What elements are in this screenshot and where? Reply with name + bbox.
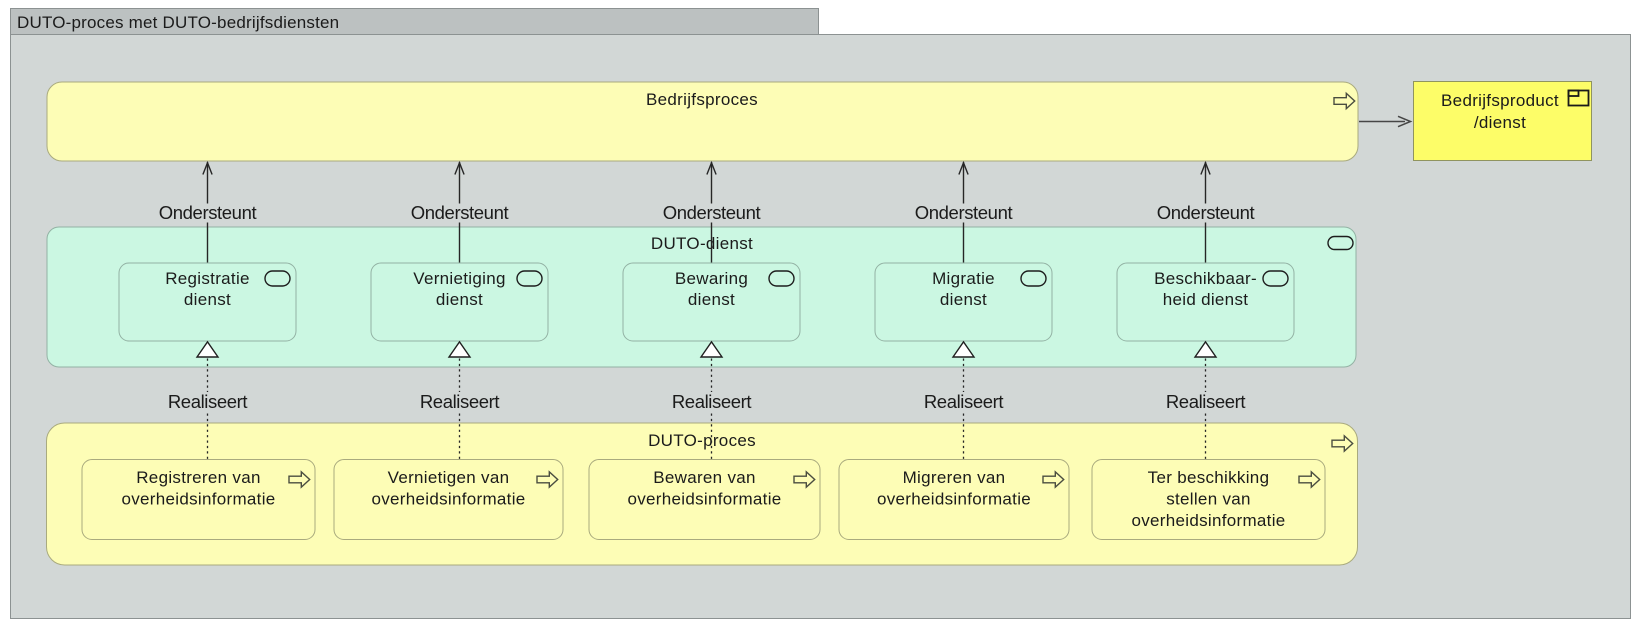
svg-text:Realiseert: Realiseert — [1166, 391, 1246, 412]
svg-text:Ondersteunt: Ondersteunt — [159, 202, 257, 223]
svg-text:Migreren van: Migreren van — [903, 468, 1006, 487]
svg-text:Registratie: Registratie — [165, 269, 250, 288]
svg-text:overheidsinformatie: overheidsinformatie — [121, 490, 275, 509]
svg-text:dienst: dienst — [688, 290, 735, 309]
svg-text:DUTO-proces: DUTO-proces — [648, 431, 756, 450]
svg-text:Ter beschikking: Ter beschikking — [1148, 468, 1270, 487]
svg-text:Bedrijfsproduct: Bedrijfsproduct — [1441, 91, 1559, 110]
svg-text:Migratie: Migratie — [932, 269, 995, 288]
svg-text:Ondersteunt: Ondersteunt — [663, 202, 761, 223]
svg-text:Bedrijfsproces: Bedrijfsproces — [646, 90, 758, 109]
svg-text:DUTO-dienst: DUTO-dienst — [651, 234, 753, 253]
svg-text:overheidsinformatie: overheidsinformatie — [1131, 511, 1285, 530]
svg-text:Realiseert: Realiseert — [924, 391, 1004, 412]
svg-text:Bewaren van: Bewaren van — [653, 468, 756, 487]
svg-text:DUTO-proces met DUTO-bedrijfsd: DUTO-proces met DUTO-bedrijfsdiensten — [17, 13, 339, 32]
svg-text:Ondersteunt: Ondersteunt — [1157, 202, 1255, 223]
svg-text:Beschikbaar-: Beschikbaar- — [1154, 269, 1257, 288]
svg-text:Bewaring: Bewaring — [675, 269, 748, 288]
svg-text:Realiseert: Realiseert — [420, 391, 500, 412]
svg-text:Realiseert: Realiseert — [168, 391, 248, 412]
svg-text:Registreren van: Registreren van — [136, 468, 261, 487]
svg-text:overheidsinformatie: overheidsinformatie — [627, 490, 781, 509]
svg-text:Realiseert: Realiseert — [672, 391, 752, 412]
svg-text:overheidsinformatie: overheidsinformatie — [371, 490, 525, 509]
svg-text:dienst: dienst — [940, 290, 987, 309]
svg-text:dienst: dienst — [184, 290, 231, 309]
svg-text:Ondersteunt: Ondersteunt — [411, 202, 509, 223]
svg-text:dienst: dienst — [436, 290, 483, 309]
svg-text:stellen van: stellen van — [1166, 490, 1251, 509]
svg-text:Ondersteunt: Ondersteunt — [915, 202, 1013, 223]
svg-text:/dienst: /dienst — [1474, 113, 1526, 132]
svg-text:overheidsinformatie: overheidsinformatie — [877, 490, 1031, 509]
svg-text:heid dienst: heid dienst — [1163, 290, 1249, 309]
svg-text:Vernietiging: Vernietiging — [413, 269, 505, 288]
svg-text:Vernietigen van: Vernietigen van — [388, 468, 510, 487]
